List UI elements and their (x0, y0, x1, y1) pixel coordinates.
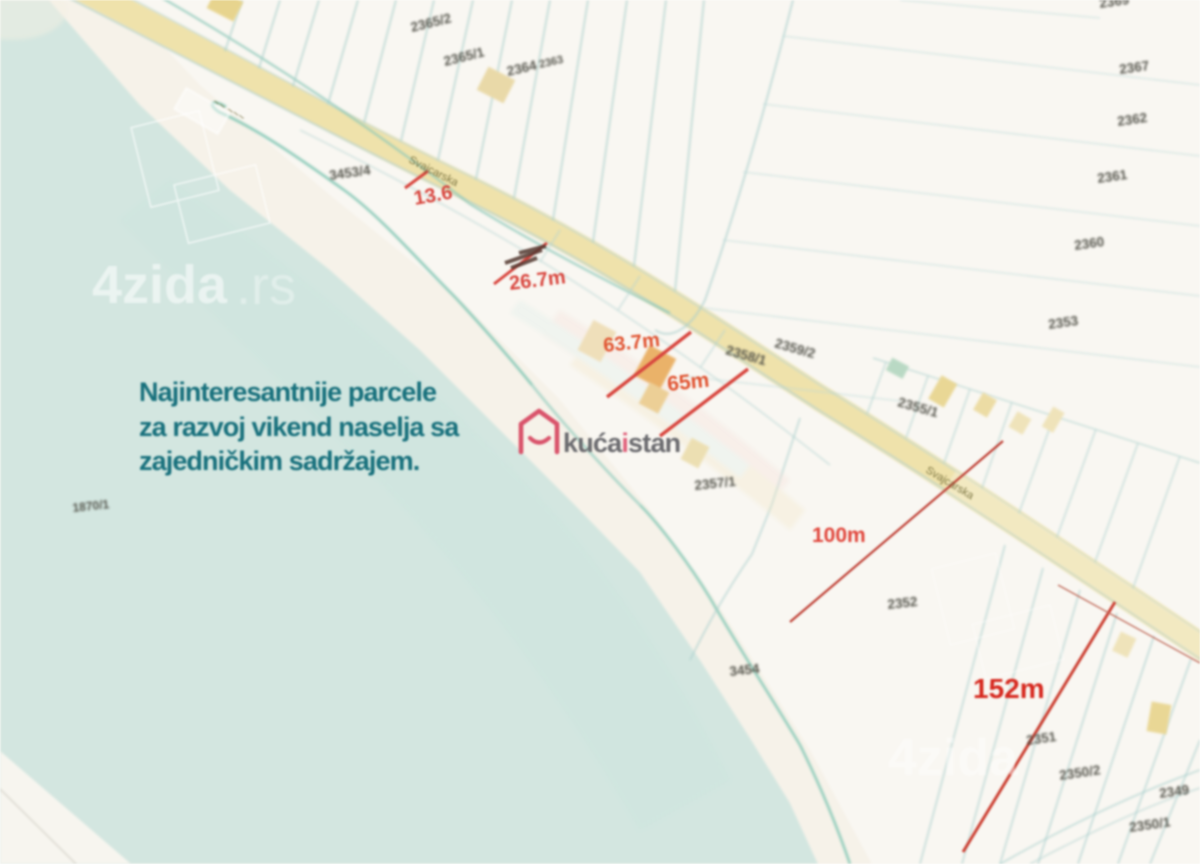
svg-text:4zida: 4zida (92, 255, 228, 315)
svg-text:152m: 152m (973, 673, 1045, 704)
svg-text:2355/1: 2355/1 (896, 394, 940, 420)
svg-text:2363: 2363 (538, 54, 565, 71)
svg-text:2365/1: 2365/1 (442, 44, 486, 69)
svg-text:2367: 2367 (1118, 58, 1150, 77)
svg-text:2350/2: 2350/2 (1058, 762, 1101, 783)
svg-text:65m: 65m (666, 369, 710, 396)
svg-text:63.7m: 63.7m (602, 329, 661, 357)
svg-text:26.7m: 26.7m (508, 266, 567, 295)
svg-text:za razvoj vikend naselja sa: za razvoj vikend naselja sa (139, 412, 460, 442)
svg-text:2361: 2361 (1096, 167, 1128, 186)
svg-text:.rs: .rs (236, 256, 296, 316)
svg-text:13.6: 13.6 (412, 181, 454, 209)
svg-text:2359/2: 2359/2 (773, 335, 817, 361)
svg-text:2369: 2369 (1098, 0, 1130, 11)
svg-text:2351: 2351 (1025, 729, 1057, 748)
svg-text:zajedničkim sadržajem.: zajedničkim sadržajem. (139, 446, 419, 476)
svg-text:100m: 100m (812, 524, 866, 547)
svg-text:~~ ~~~: ~~ ~~~ (211, 96, 247, 124)
svg-text:2365/2: 2365/2 (409, 10, 453, 35)
svg-text:2349: 2349 (1158, 782, 1190, 801)
svg-text:3453/4: 3453/4 (328, 162, 371, 183)
svg-text:4zida: 4zida (888, 729, 1019, 787)
svg-text:2358/1: 2358/1 (724, 342, 768, 368)
svg-text:3454: 3454 (729, 661, 761, 679)
svg-text:1870/1: 1870/1 (72, 497, 110, 515)
svg-text:Najinteresantnije parcele: Najinteresantnije parcele (139, 377, 437, 407)
svg-text:2357/1: 2357/1 (694, 474, 737, 493)
svg-text:2353: 2353 (1047, 313, 1079, 332)
svg-text:2350/1: 2350/1 (1128, 814, 1171, 835)
svg-text:kućaistan: kućaistan (563, 428, 680, 458)
svg-text:2352: 2352 (887, 594, 918, 612)
svg-text:2362: 2362 (1116, 110, 1148, 129)
svg-text:2360: 2360 (1073, 234, 1105, 253)
svg-text:2364: 2364 (505, 57, 538, 78)
